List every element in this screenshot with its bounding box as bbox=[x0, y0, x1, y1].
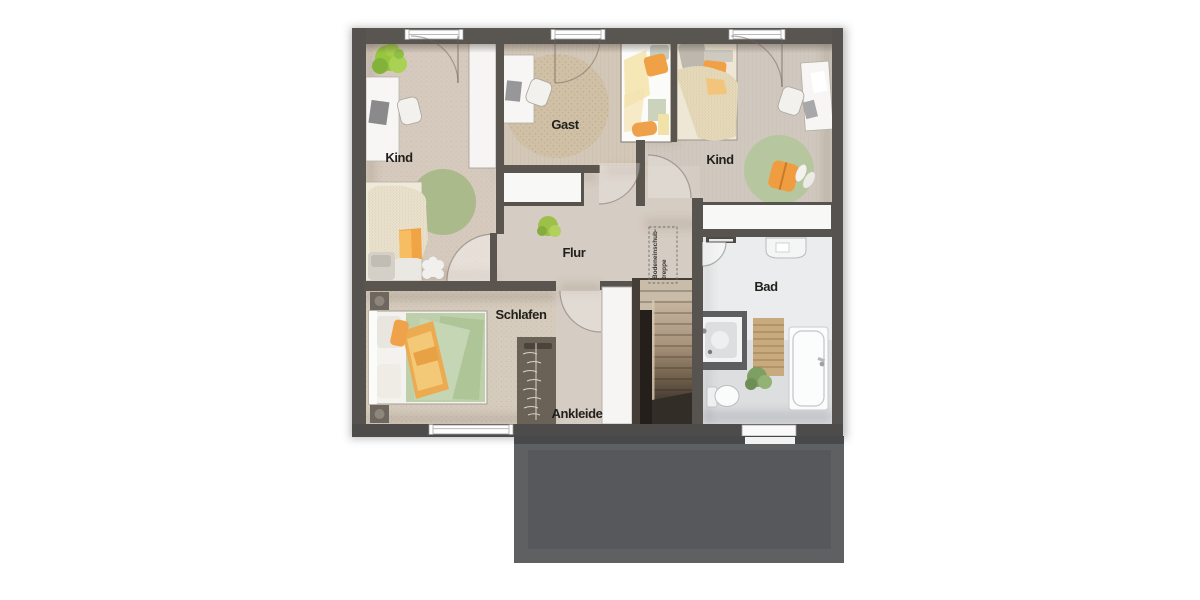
svg-text:Schlafen: Schlafen bbox=[496, 307, 547, 322]
svg-text:Kind: Kind bbox=[706, 152, 734, 167]
svg-text:Flur: Flur bbox=[563, 245, 586, 260]
svg-text:Gast: Gast bbox=[551, 117, 579, 132]
svg-text:Ankleide: Ankleide bbox=[552, 406, 603, 421]
svg-text:Bodeneinschub-: Bodeneinschub- bbox=[652, 229, 659, 279]
svg-text:Bad: Bad bbox=[754, 279, 778, 294]
svg-text:treppe: treppe bbox=[661, 259, 668, 279]
svg-text:Kind: Kind bbox=[385, 150, 413, 165]
